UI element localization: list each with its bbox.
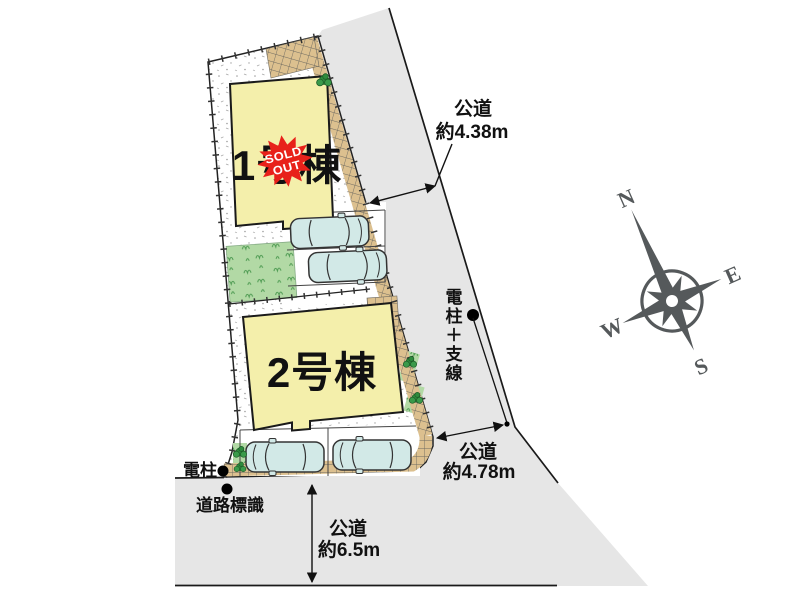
compass-rose: N E S W: [551, 157, 773, 409]
car: [333, 437, 411, 474]
car: [246, 439, 324, 476]
road-north-name: 公道: [454, 97, 492, 120]
car: [308, 246, 388, 286]
building-2-label: 2号棟: [267, 349, 377, 396]
road-east-name: 公道: [459, 440, 497, 463]
utility-pole-dot: [218, 466, 229, 477]
pole-guy-wire-label: 電柱＋支線: [446, 288, 464, 383]
site-plan-drawing: 1号棟 2号棟 SOLD OUT 公道 約4.38m 公道 約4.78m 公道 …: [0, 0, 800, 599]
car: [290, 212, 370, 252]
site-plan: 1号棟 2号棟 SOLD OUT 公道 約4.38m 公道 約4.78m 公道 …: [0, 0, 800, 599]
lawn-patch: [226, 242, 297, 303]
road-south-width: 約6.5m: [318, 538, 380, 561]
road-sign-dot: [222, 484, 233, 495]
road-south-name: 公道: [329, 517, 367, 540]
road-sign-label: 道路標識: [196, 495, 264, 515]
compass-west-label: W: [597, 312, 627, 344]
road-north-width: 約4.38m: [436, 120, 509, 143]
compass-east-label: E: [721, 260, 745, 289]
road-east-width: 約4.78m: [443, 460, 516, 483]
guy-wire-anchor-dot: [504, 421, 509, 426]
compass-north-label: N: [614, 184, 639, 213]
compass-south-label: S: [690, 352, 711, 380]
utility-pole-label: 電柱: [183, 460, 217, 480]
